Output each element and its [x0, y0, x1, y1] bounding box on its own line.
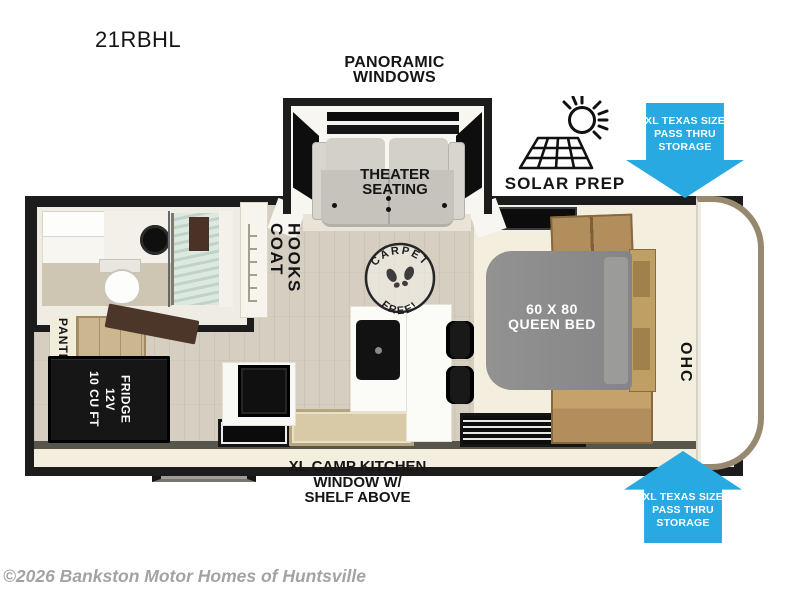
front-cap [696, 196, 764, 470]
seat-button [332, 203, 337, 208]
panoramic-window-top [327, 112, 459, 134]
toilet [103, 269, 141, 305]
dinette-chair-1 [446, 321, 474, 359]
kitchen-sink [356, 320, 400, 380]
ohc-label: OHC [668, 326, 702, 400]
dealer-watermark: ©2026 Bankston Motor Homes of Huntsville [3, 566, 366, 587]
solar-prep-icon [514, 96, 614, 176]
bathroom-sink [140, 225, 170, 255]
camp-kitchen-window [289, 409, 414, 446]
bathroom-upper-cabinet [42, 211, 106, 237]
panoramic-windows-label: PANORAMIC WINDOWS [312, 55, 477, 85]
pass-thru-storage-arrow-top: XL TEXAS SIZE PASS THRU STORAGE [626, 103, 744, 198]
camp-kitchen-label: XL CAMP KITCHEN WINDOW W/ SHELF ABOVE [265, 459, 450, 506]
coat-hooks-label: COAT HOOKS [267, 223, 303, 293]
wardrobe-bottom [551, 384, 653, 444]
seat-button [442, 203, 447, 208]
fridge: 10 CU FT 12V FRIDGE [48, 356, 170, 443]
headboard-door [633, 328, 650, 370]
shower-rail [168, 211, 170, 307]
floorplan-image: 21RBHL PANORAMIC WINDOWS COAT HOOKS PANT… [0, 0, 800, 600]
theater-seating-label: THEATER SEATING [322, 167, 468, 197]
seat-button [386, 207, 391, 212]
shower-shelf [189, 217, 209, 251]
carpet-free-badge: CARPET FREE! [360, 238, 440, 318]
queen-bed-label: 60 X 80 QUEEN BED [486, 302, 632, 332]
dinette-chair-2 [446, 366, 474, 404]
headboard-door [633, 261, 650, 297]
model-number: 21RBHL [95, 27, 181, 53]
stove [238, 365, 290, 417]
solar-prep-label: SOLAR PREP [500, 174, 630, 194]
bathroom-ledge [219, 211, 233, 307]
coat-hooks-rail [248, 224, 257, 302]
